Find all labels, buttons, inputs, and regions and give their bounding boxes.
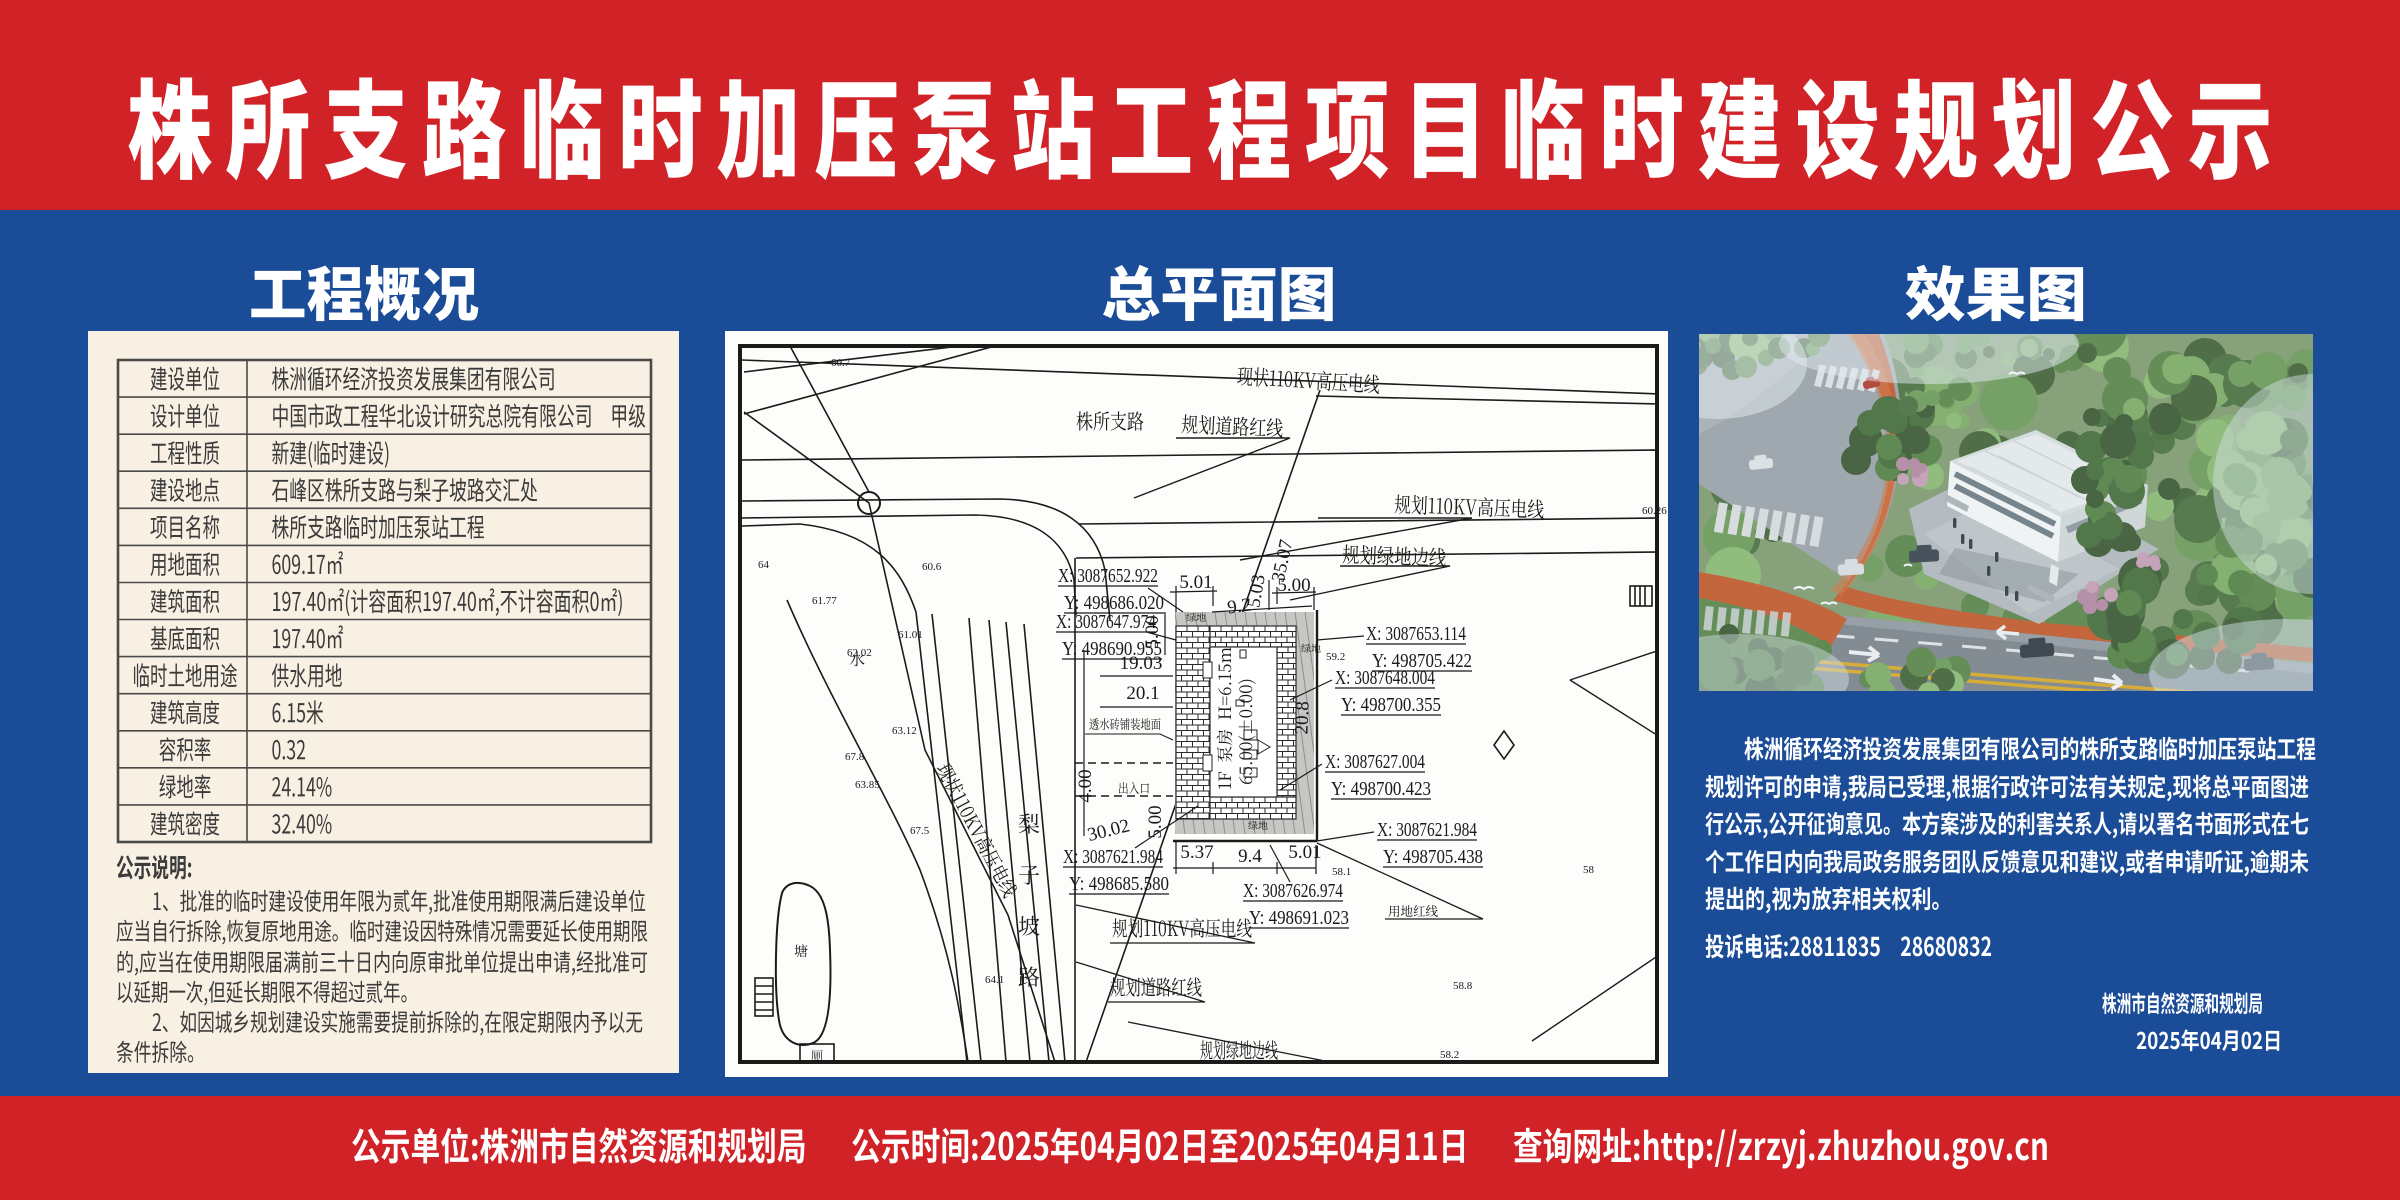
svg-text:X: 3087653.114: X: 3087653.114 xyxy=(1366,623,1466,645)
svg-text:67.5: 67.5 xyxy=(910,825,930,837)
svg-text:19.03: 19.03 xyxy=(1120,653,1163,674)
svg-text:X: 3087648.004: X: 3087648.004 xyxy=(1335,667,1435,689)
svg-text:X: 3087627.004: X: 3087627.004 xyxy=(1325,751,1425,773)
svg-text:60.6: 60.6 xyxy=(922,561,942,573)
svg-text:9.4: 9.4 xyxy=(1238,846,1262,867)
svg-text:X: 3087621.984: X: 3087621.984 xyxy=(1377,819,1477,841)
svg-text:64.1: 64.1 xyxy=(985,974,1004,986)
svg-text:60.26: 60.26 xyxy=(1642,505,1667,517)
svg-text:X: 3087647.974: X: 3087647.974 xyxy=(1056,611,1156,633)
svg-text:58: 58 xyxy=(1583,864,1595,876)
svg-text:64: 64 xyxy=(758,559,770,571)
svg-text:63.85: 63.85 xyxy=(855,779,880,791)
svg-text:62.02: 62.02 xyxy=(847,647,872,659)
svg-text:9.2: 9.2 xyxy=(1226,595,1252,619)
svg-text:63.12: 63.12 xyxy=(892,725,917,737)
svg-text:5.00: 5.00 xyxy=(1145,805,1166,838)
svg-text:60.7: 60.7 xyxy=(831,357,851,369)
svg-text:20.1: 20.1 xyxy=(1126,683,1159,704)
svg-text:4.00: 4.00 xyxy=(1075,769,1096,802)
svg-text:58.1: 58.1 xyxy=(1332,866,1351,878)
svg-text:Y: 498700.355: Y: 498700.355 xyxy=(1341,694,1441,716)
svg-text:61.01: 61.01 xyxy=(898,629,923,641)
svg-text:58.8: 58.8 xyxy=(1453,980,1473,992)
svg-text:X: 3087621.984: X: 3087621.984 xyxy=(1063,846,1163,868)
svg-text:5.00: 5.00 xyxy=(1142,615,1163,648)
svg-text:67.8: 67.8 xyxy=(845,751,865,763)
svg-text:Y: 498705.438: Y: 498705.438 xyxy=(1383,846,1483,868)
svg-text:5.37: 5.37 xyxy=(1180,842,1213,863)
svg-text:58.2: 58.2 xyxy=(1440,1049,1459,1061)
svg-text:5.01: 5.01 xyxy=(1288,842,1321,863)
svg-text:20.8: 20.8 xyxy=(1291,701,1313,735)
svg-text:Y: 498685.580: Y: 498685.580 xyxy=(1069,873,1169,895)
svg-text:Y: 498691.023: Y: 498691.023 xyxy=(1249,907,1349,929)
svg-text:61.77: 61.77 xyxy=(812,595,837,607)
svg-text:Y: 498700.423: Y: 498700.423 xyxy=(1331,778,1431,800)
svg-text:5.01: 5.01 xyxy=(1179,572,1212,593)
svg-text:X: 3087626.974: X: 3087626.974 xyxy=(1243,880,1343,902)
svg-text:59.2: 59.2 xyxy=(1326,651,1345,663)
svg-text:X: 3087652.922: X: 3087652.922 xyxy=(1058,565,1158,587)
